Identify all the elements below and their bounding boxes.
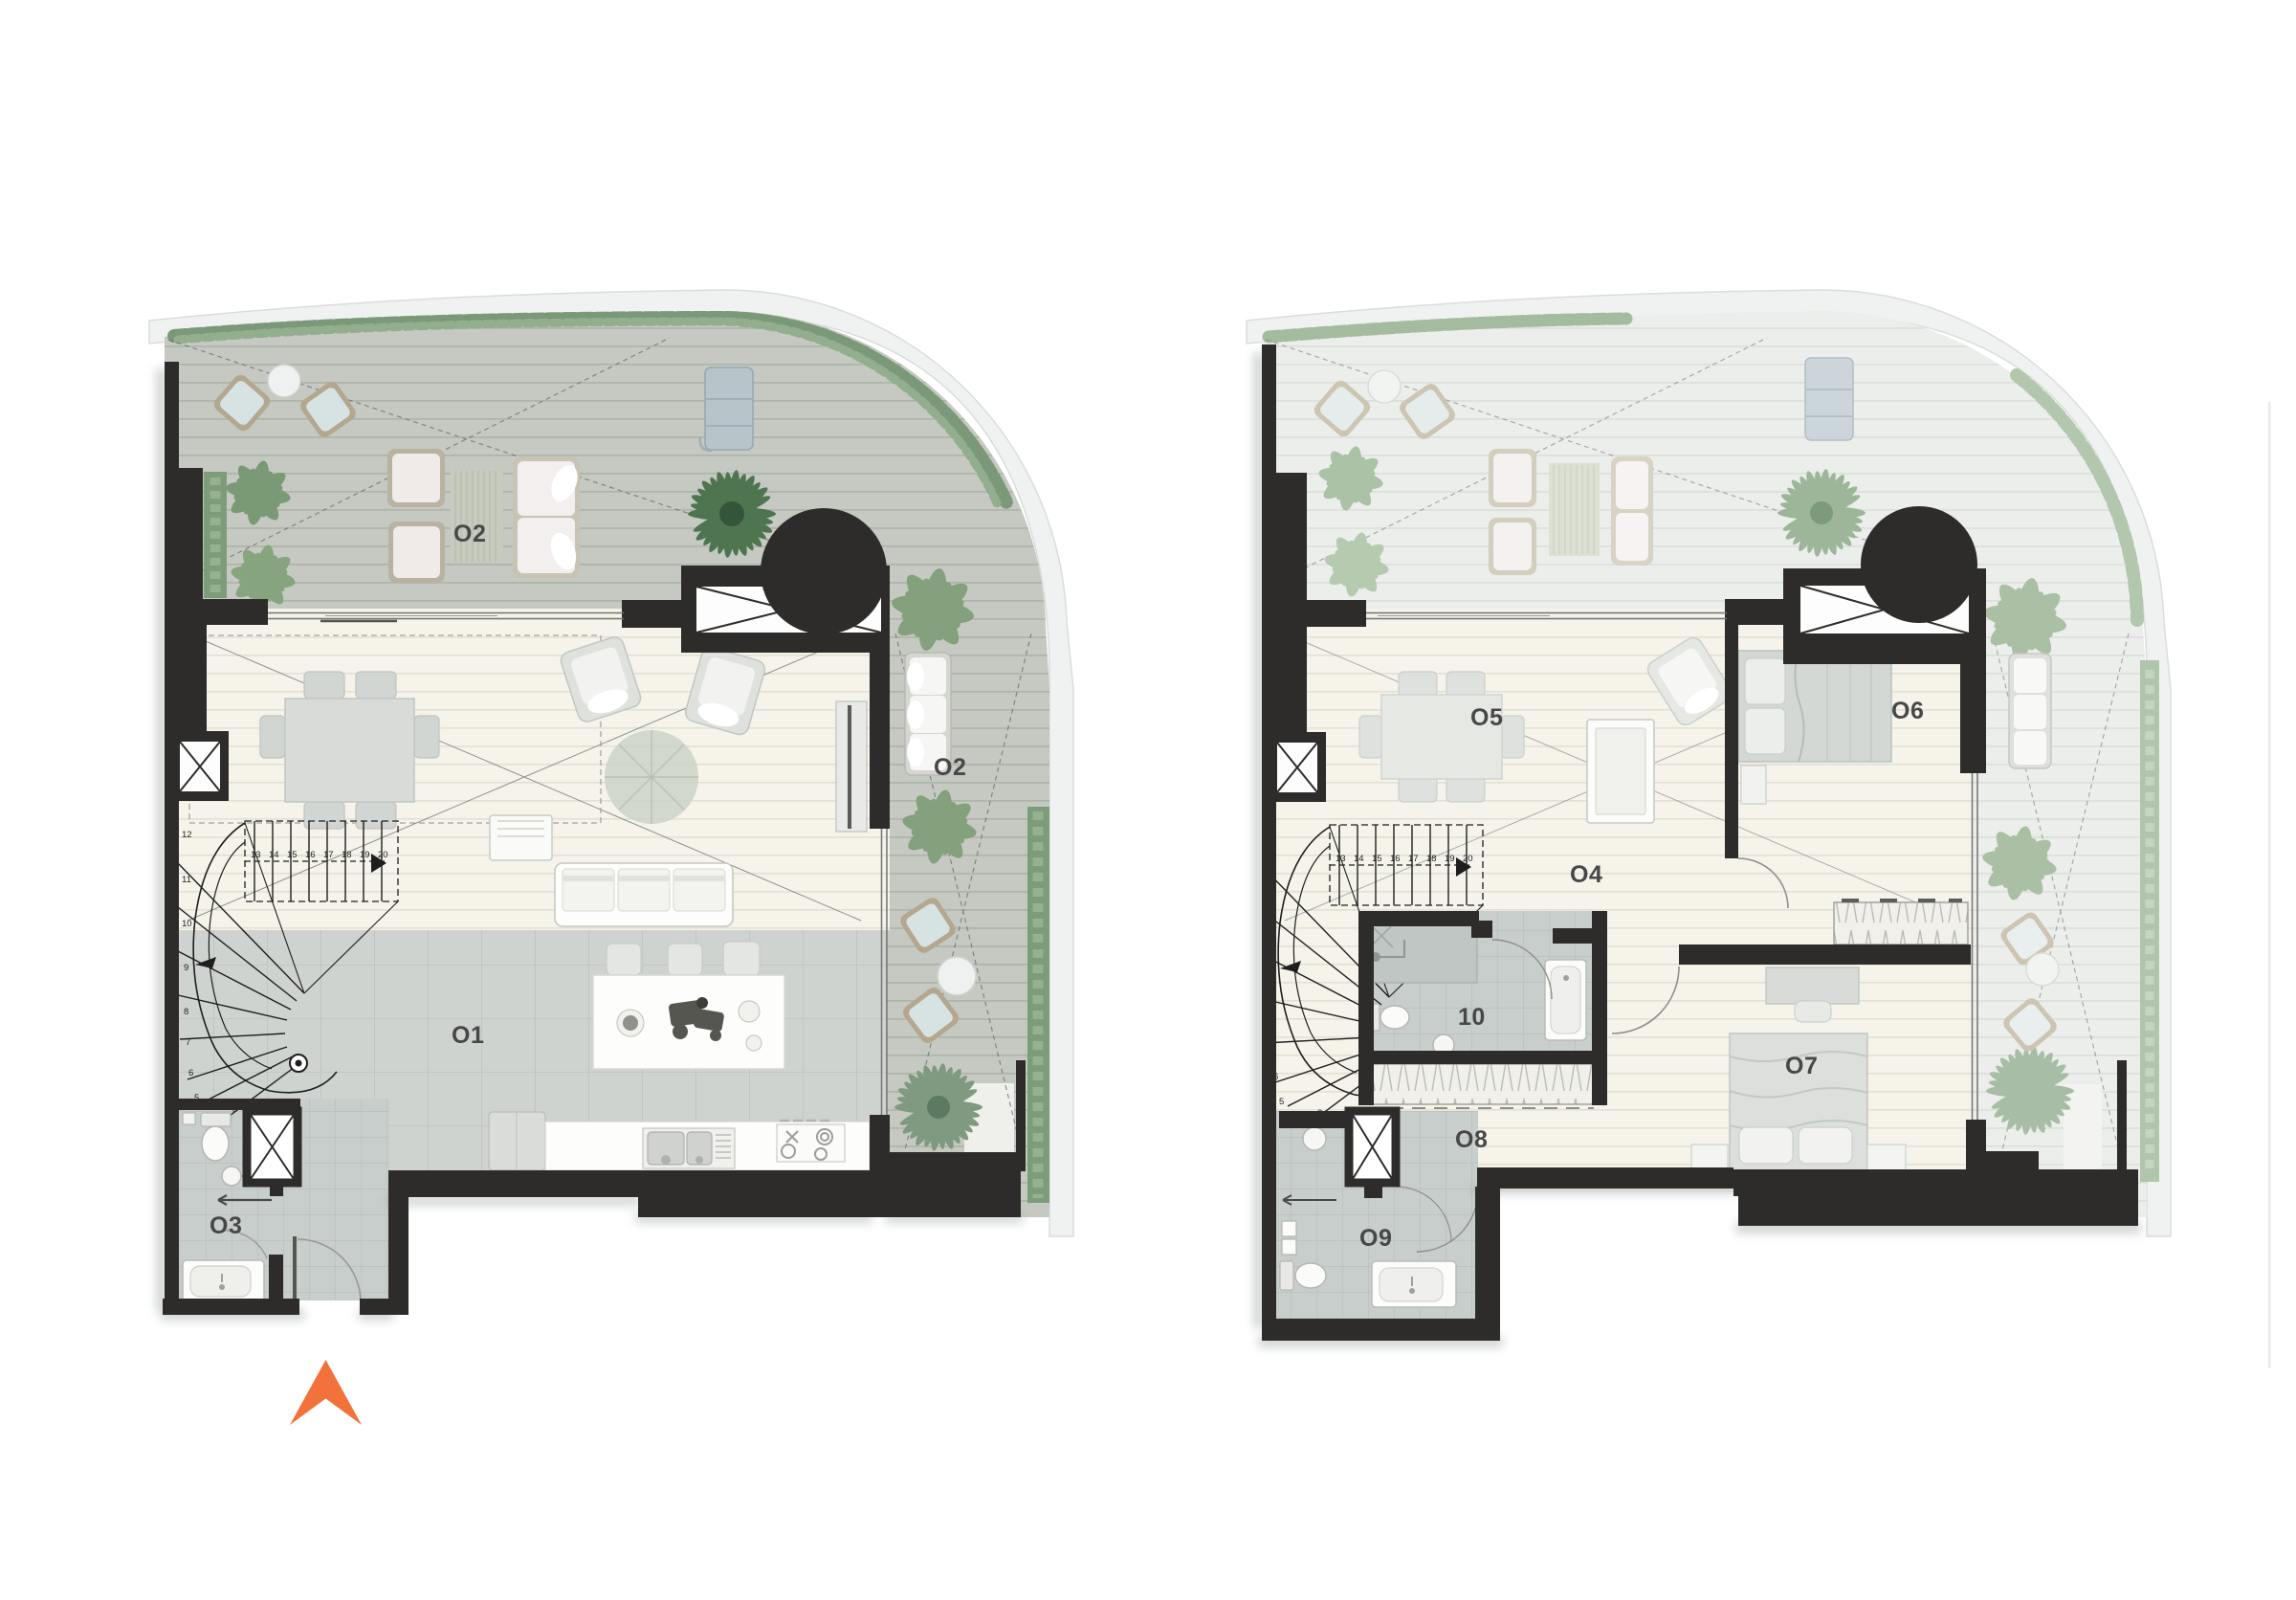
svg-text:7: 7 <box>186 1037 190 1048</box>
svg-text:18: 18 <box>342 850 352 860</box>
svg-text:O6: O6 <box>1891 698 1924 724</box>
svg-text:8: 8 <box>184 1007 188 1017</box>
svg-text:O8: O8 <box>1455 1126 1488 1153</box>
svg-text:9: 9 <box>184 963 188 973</box>
svg-text:12: 12 <box>182 830 192 840</box>
svg-text:6: 6 <box>188 1068 193 1078</box>
svg-text:O3: O3 <box>210 1212 242 1239</box>
svg-text:O5: O5 <box>1470 704 1503 731</box>
svg-text:O2: O2 <box>453 521 486 547</box>
svg-text:19: 19 <box>360 850 370 860</box>
svg-text:14: 14 <box>269 850 279 860</box>
svg-text:17: 17 <box>323 850 334 860</box>
svg-text:O9: O9 <box>1359 1225 1392 1252</box>
svg-text:10: 10 <box>1458 1004 1486 1031</box>
svg-text:10: 10 <box>182 919 192 929</box>
svg-text:13: 13 <box>251 850 261 860</box>
svg-text:O1: O1 <box>452 1022 484 1049</box>
svg-text:20: 20 <box>378 850 388 860</box>
svg-text:16: 16 <box>305 850 316 860</box>
svg-text:O4: O4 <box>1570 861 1602 888</box>
svg-text:O7: O7 <box>1785 1053 1818 1079</box>
svg-text:15: 15 <box>287 850 298 860</box>
svg-text:O2: O2 <box>934 754 966 781</box>
svg-text:11: 11 <box>182 875 191 885</box>
